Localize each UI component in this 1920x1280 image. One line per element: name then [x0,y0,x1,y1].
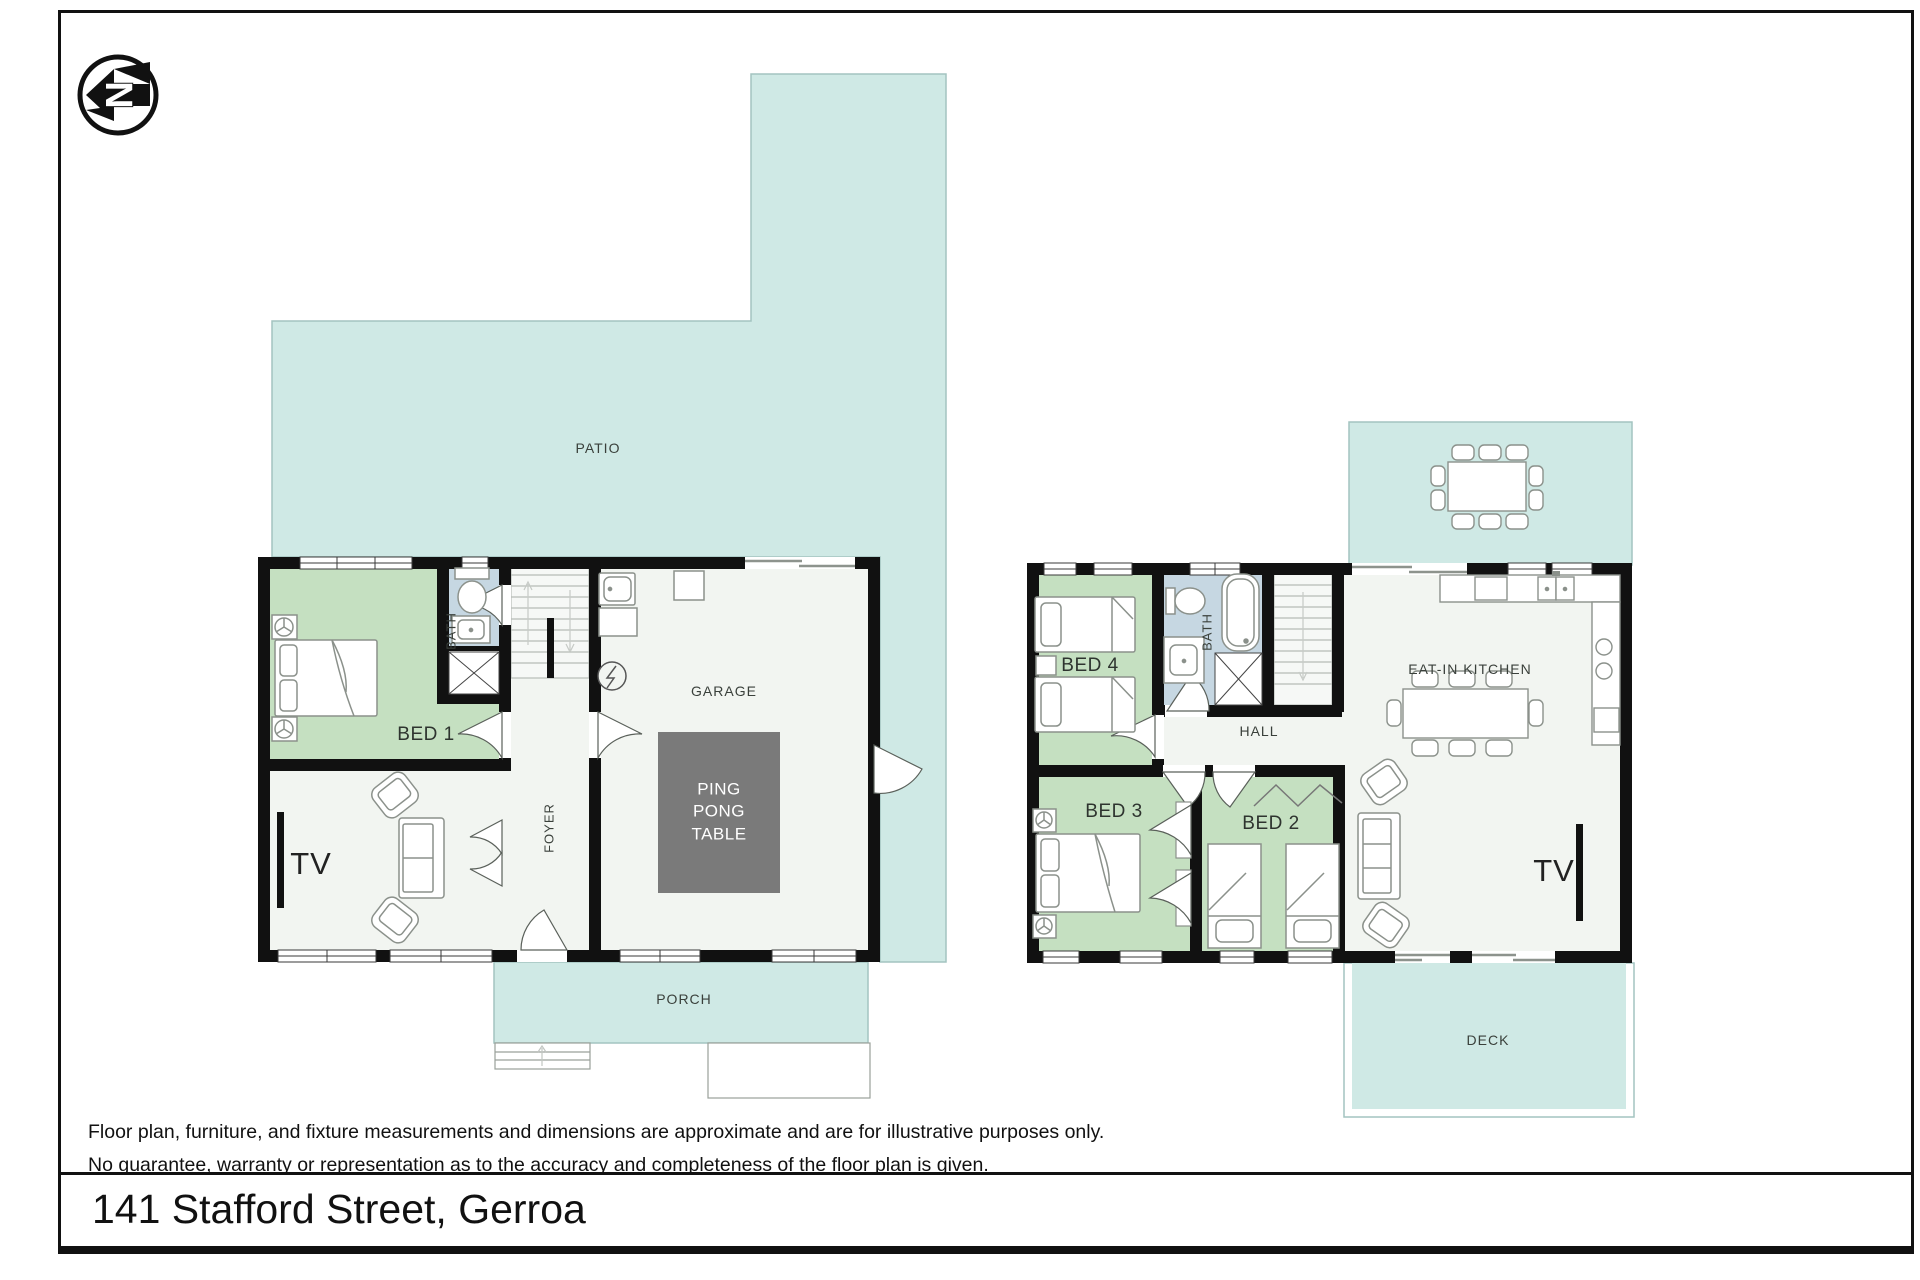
stairs-ground [511,563,589,678]
porch-label: PORCH [656,991,712,1007]
footer-separator [58,1172,1914,1175]
deck-label: DECK [1467,1032,1510,1048]
disclaimer-line-1: Floor plan, furniture, and fixture measu… [88,1116,1104,1149]
bed2-label: BED 2 [1242,813,1299,835]
compass-letter: N [97,81,139,108]
ground-floor-plan [258,74,946,1098]
bath-upper-label: BATH [1200,613,1215,651]
tv-ground-label: TV [290,846,332,882]
property-address: 141 Stafford Street, Gerroa [92,1186,586,1233]
tv-upper-label: TV [1533,853,1575,889]
foyer-label: FOYER [542,803,557,853]
patio-label: PATIO [576,440,621,456]
north-arrow-icon: N [80,57,156,133]
porch-steps [495,1043,590,1069]
tv-unit-upper [1576,824,1583,921]
bath-ground-label: BATH [444,612,459,650]
garage-label: GARAGE [691,683,757,699]
hall-label: HALL [1239,723,1278,739]
bed4-label: BED 4 [1061,655,1118,677]
floor-plan-drawing: N [0,0,1920,1280]
stairs-upper [1274,574,1332,705]
tv-unit-ground [277,812,284,908]
eat-in-kitchen-label: EAT-IN KITCHEN [1408,661,1531,677]
upper-floor-plan [1027,422,1634,1117]
disclaimer-line-2: No guarantee, warranty or representation… [88,1149,1104,1182]
bed1-label: BED 1 [397,724,454,746]
ping-pong-label: PING PONG TABLE [682,778,756,845]
floor-plan-page: N [0,0,1920,1280]
driveway-pad [708,1043,870,1098]
garage-sliding-door [745,557,855,569]
bed3-label: BED 3 [1085,801,1142,823]
